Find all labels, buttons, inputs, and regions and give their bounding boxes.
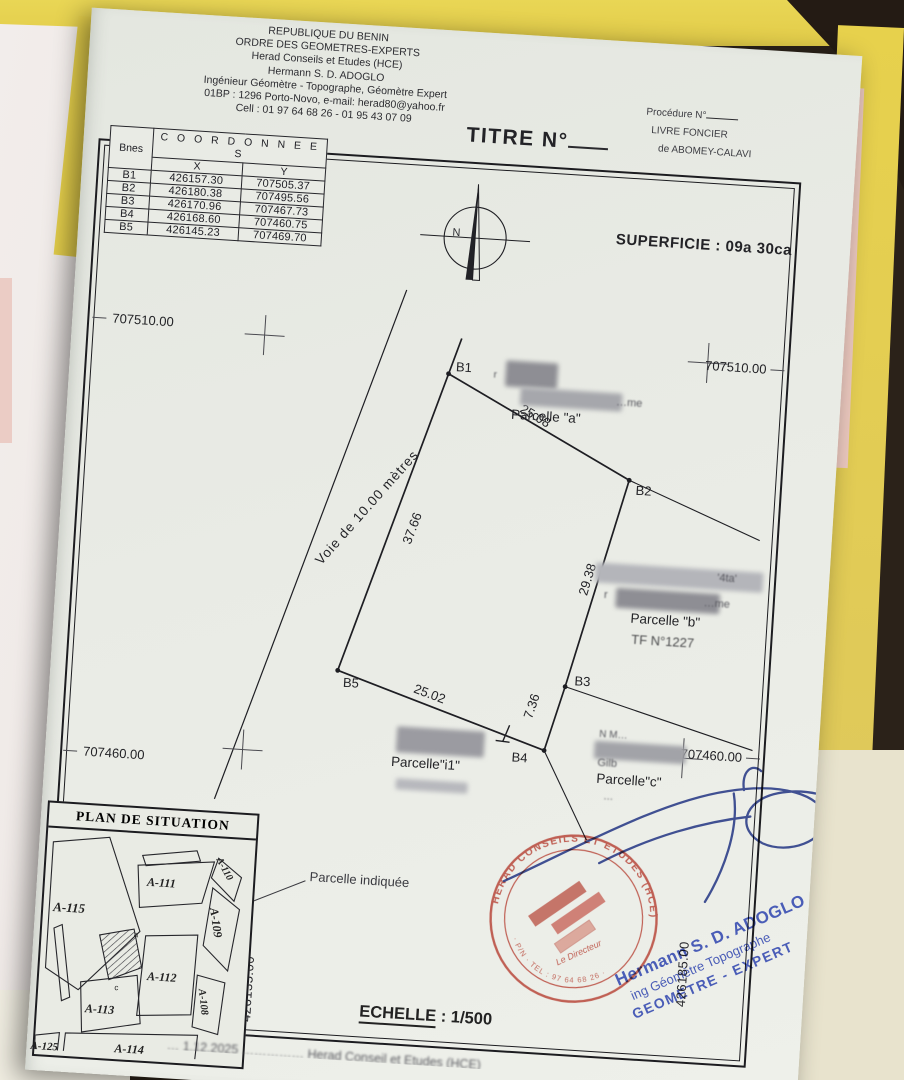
scale-sep: : [436, 1007, 452, 1026]
scanned-survey-photo: REPUBLIQUE DU BENIN ORDRE DES GEOMETRES-… [0, 0, 904, 1080]
survey-plan-sheet: REPUBLIQUE DU BENIN ORDRE DES GEOMETRES-… [25, 8, 862, 1080]
scale-value: 1/500 [450, 1008, 492, 1029]
paper-pink-left [0, 278, 12, 443]
